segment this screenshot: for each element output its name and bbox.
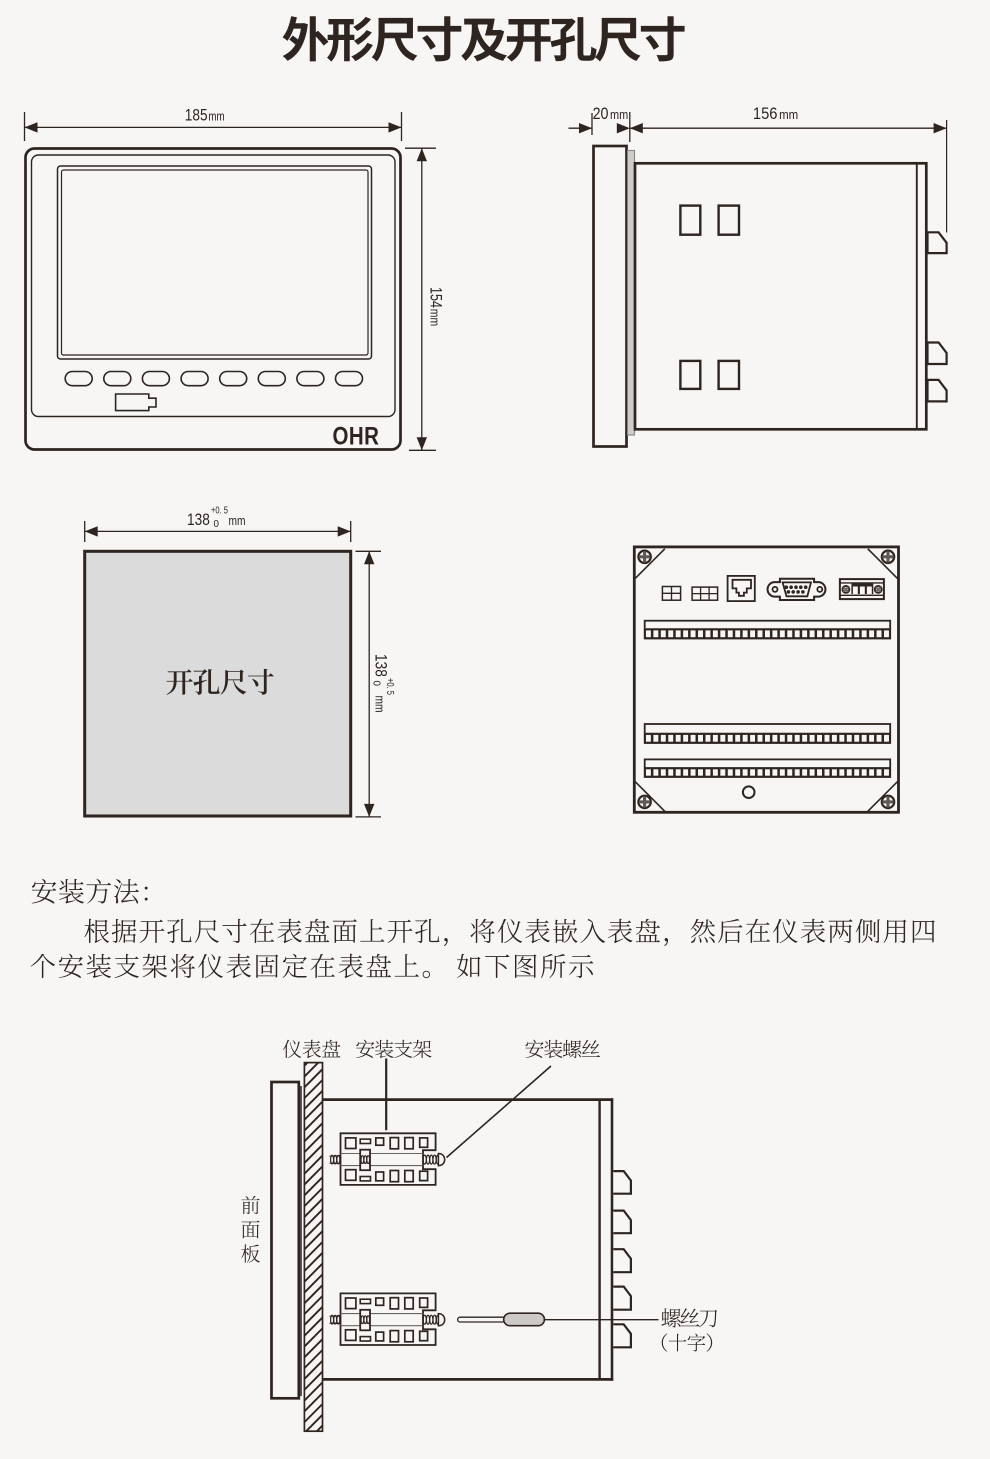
svg-text:0: 0 bbox=[214, 519, 220, 530]
svg-text:+0. 5: +0. 5 bbox=[384, 678, 395, 695]
svg-text:20: 20 bbox=[593, 104, 609, 123]
svg-text:OHR: OHR bbox=[333, 422, 380, 450]
svg-text:mm: mm bbox=[373, 696, 388, 713]
svg-text:154: 154 bbox=[427, 287, 446, 308]
svg-text:138: 138 bbox=[187, 510, 210, 529]
svg-text:138: 138 bbox=[372, 654, 391, 677]
svg-text:mm: mm bbox=[428, 309, 443, 327]
svg-text:+0. 5: +0. 5 bbox=[211, 506, 228, 517]
svg-text:mm: mm bbox=[610, 107, 628, 122]
svg-text:156: 156 bbox=[753, 104, 778, 123]
svg-text:mm: mm bbox=[779, 107, 798, 122]
svg-text:mm: mm bbox=[208, 108, 224, 123]
svg-text:185: 185 bbox=[185, 105, 208, 124]
svg-text:0: 0 bbox=[371, 681, 382, 687]
svg-text:mm: mm bbox=[229, 513, 246, 528]
